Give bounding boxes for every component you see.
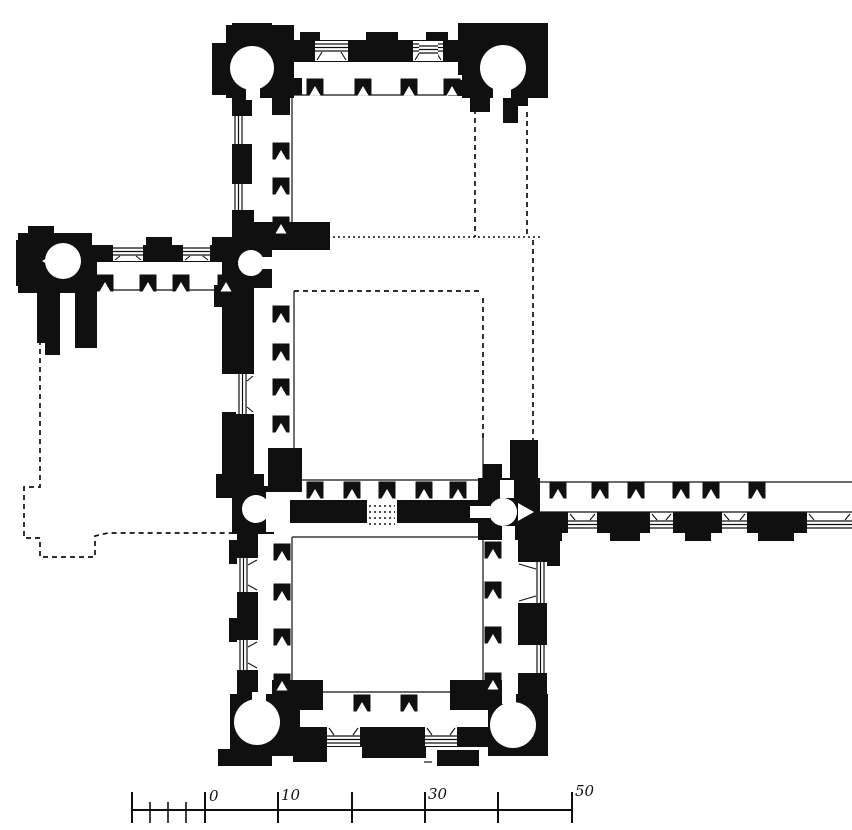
arcade-pier — [703, 482, 720, 499]
window-opening — [568, 513, 597, 531]
arcade-pier — [274, 584, 291, 601]
window-opening — [419, 43, 438, 56]
window-opening — [237, 558, 258, 592]
arcade-pier — [274, 544, 291, 561]
arcade-pier — [273, 344, 290, 361]
arcade-pier — [140, 275, 157, 292]
arcade-pier — [550, 482, 567, 499]
window-opening — [327, 727, 360, 746]
window-opening — [315, 41, 348, 61]
arcade-pier — [628, 482, 645, 499]
floor-plan-drawing: 0103050 — [0, 0, 852, 830]
arcade-pier — [273, 306, 290, 323]
courtyard-arcade-lines — [97, 95, 852, 762]
scale-label: 0 — [209, 787, 219, 805]
arcade-pier — [344, 482, 361, 499]
window-opening — [113, 245, 143, 261]
window-opening — [722, 513, 747, 531]
arcade-pier — [173, 275, 190, 292]
arcade-pier — [273, 143, 290, 160]
arcade-pier — [273, 178, 290, 195]
arcade-pier — [354, 695, 371, 712]
arcade-pier — [450, 482, 467, 499]
window-opening — [232, 116, 252, 144]
arcade-pier — [307, 482, 324, 499]
arcade-pier — [218, 275, 235, 292]
arcade-pier — [273, 379, 290, 396]
arcade-pier — [379, 482, 396, 499]
plan-sheet: 0103050 — [0, 0, 852, 830]
scale-label: 50 — [575, 782, 595, 800]
arcade-pier — [401, 695, 418, 712]
arcade-piers — [97, 79, 766, 712]
arcade-pier — [274, 674, 291, 691]
arcade-pier — [273, 416, 290, 433]
arcade-pier — [749, 482, 766, 499]
arcade-pier — [485, 582, 502, 599]
arcade-pier — [401, 79, 418, 96]
arcade-pier — [416, 482, 433, 499]
window-opening — [518, 562, 547, 603]
arcade-pier — [673, 482, 690, 499]
window-opening — [236, 374, 254, 414]
scale-bar: 0103050 — [132, 782, 595, 823]
arcade-pier — [97, 275, 114, 292]
arcade-pier — [485, 627, 502, 644]
scale-label: 10 — [281, 786, 301, 804]
arcade-pier — [273, 217, 290, 234]
window-opening — [232, 184, 252, 210]
arcade-pier — [592, 482, 609, 499]
window-opening — [807, 513, 852, 531]
masonry-walls — [16, 23, 807, 766]
window-opening — [183, 245, 210, 261]
window-opening — [237, 640, 258, 670]
arcade-pier — [485, 542, 502, 559]
window-opening — [518, 645, 547, 673]
arcade-pier — [355, 79, 372, 96]
window-opening — [425, 727, 457, 746]
arcade-pier — [274, 629, 291, 646]
window-opening — [650, 513, 673, 531]
scale-label: 30 — [428, 785, 448, 803]
arcade-pier — [307, 79, 324, 96]
arcade-pier — [485, 673, 502, 690]
arcade-pier — [444, 79, 461, 96]
